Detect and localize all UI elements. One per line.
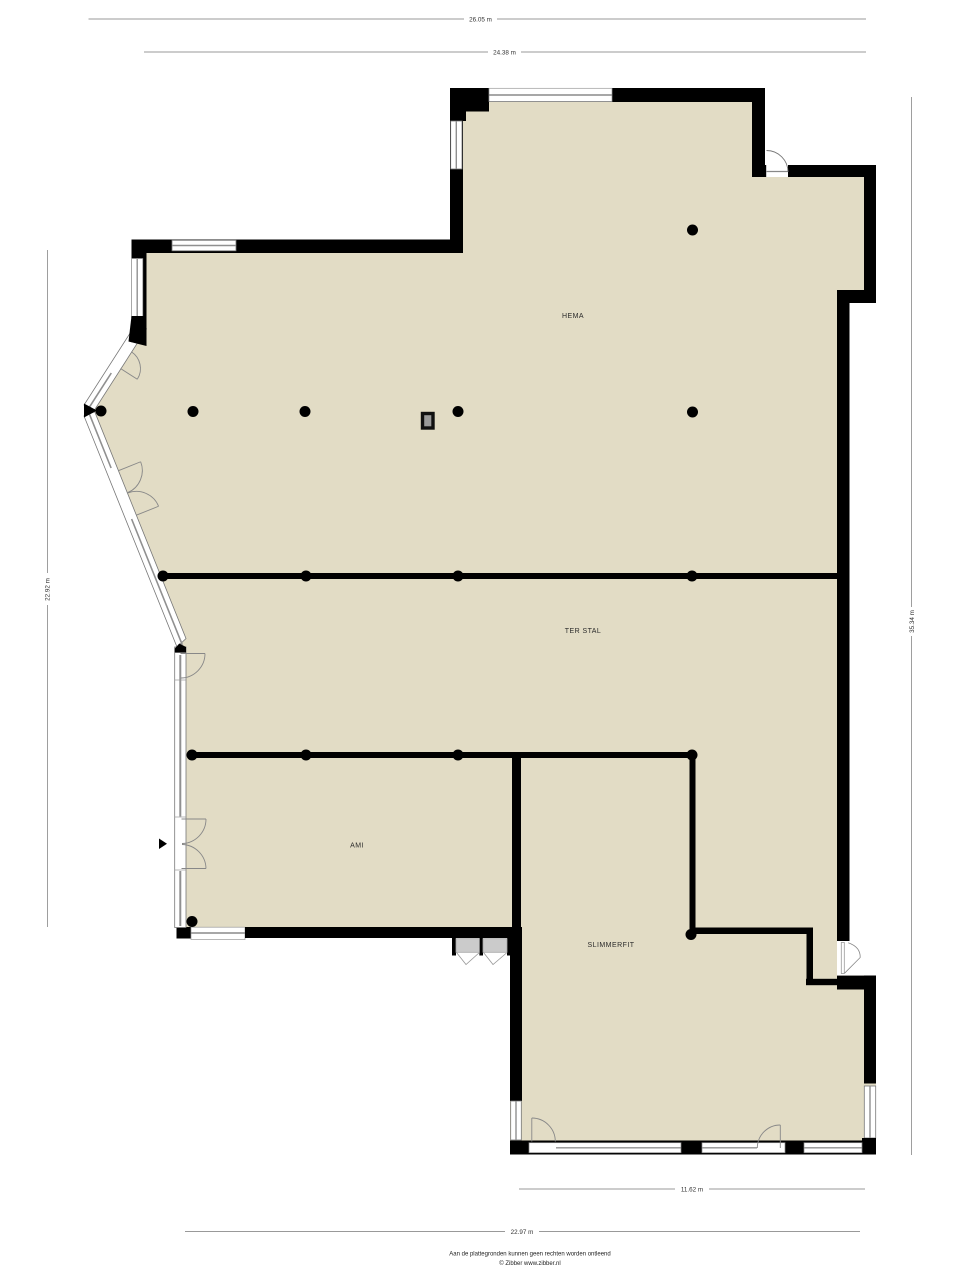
svg-text:26.05 m: 26.05 m — [469, 16, 492, 23]
svg-text:TER STAL: TER STAL — [565, 628, 602, 635]
svg-text:35.34 m: 35.34 m — [909, 610, 916, 633]
svg-text:AMI: AMI — [350, 843, 364, 850]
svg-text:11.62 m: 11.62 m — [681, 1186, 703, 1193]
svg-text:Aan de plattegronden kunnen ge: Aan de plattegronden kunnen geen rechten… — [449, 1252, 610, 1258]
svg-text:HEMA: HEMA — [562, 313, 584, 320]
svg-text:22.92 m: 22.92 m — [45, 578, 52, 601]
svg-text:22.97 m: 22.97 m — [511, 1229, 534, 1236]
svg-text:SLIMMERFIT: SLIMMERFIT — [588, 942, 635, 949]
svg-text:© Zibber www.zibber.nl: © Zibber www.zibber.nl — [499, 1260, 560, 1267]
svg-text:24.38 m: 24.38 m — [493, 49, 516, 56]
